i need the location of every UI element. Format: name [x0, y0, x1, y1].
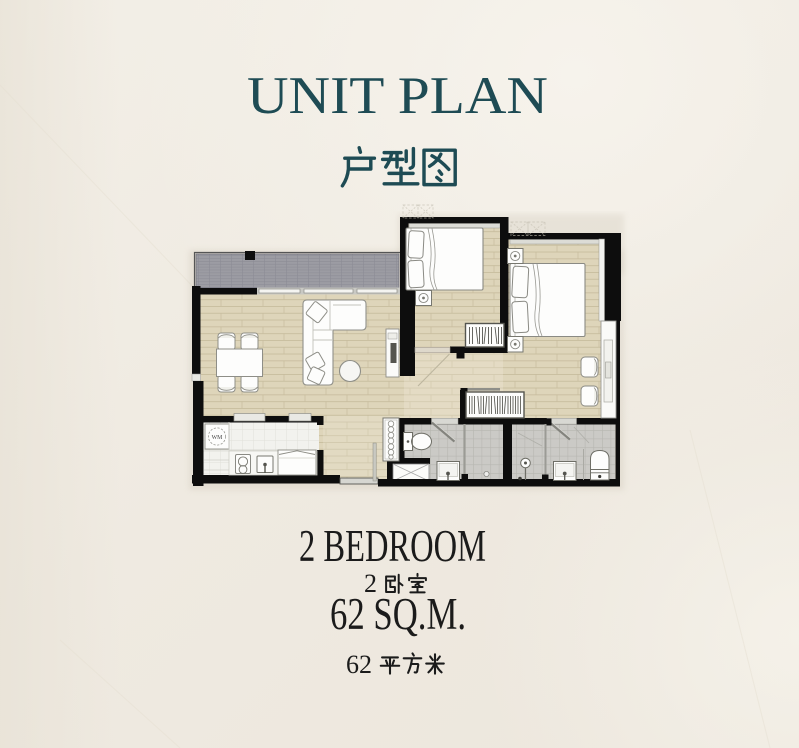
svg-text:2 BEDROOM: 2 BEDROOM [299, 521, 486, 571]
svg-text:62 SQ.M.: 62 SQ.M. [330, 589, 466, 639]
svg-text:UNIT PLAN: UNIT PLAN [247, 67, 548, 125]
svg-text:WM: WM [212, 435, 223, 441]
svg-text:62: 62 [346, 650, 372, 679]
